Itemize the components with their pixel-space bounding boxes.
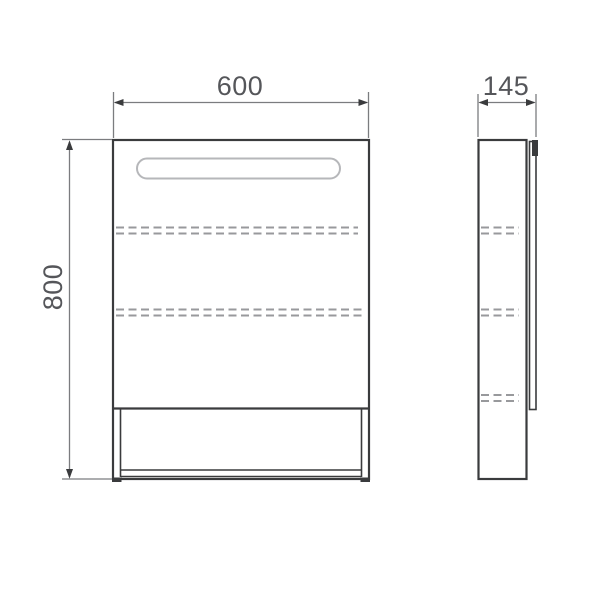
arrowhead-up-icon [66, 140, 73, 150]
side-door-top-edge [532, 140, 538, 156]
height-dimension-label: 800 [38, 264, 68, 311]
side-view [479, 140, 539, 479]
technical-drawing-page: 600 800 145 [0, 0, 600, 600]
arrowhead-left-icon [114, 99, 124, 106]
front-width-dimension-label: 600 [217, 71, 264, 101]
front-view [112, 140, 370, 482]
right-foot [361, 478, 371, 483]
light-strip [137, 159, 340, 179]
side-door-panel [530, 142, 537, 410]
dimension-front-width: 600 [114, 71, 369, 138]
left-foot [112, 478, 122, 483]
depth-dimension-label: 145 [483, 71, 530, 101]
technical-drawing-canvas: 600 800 145 [0, 0, 600, 600]
dimension-depth: 145 [478, 71, 536, 137]
arrowhead-down-icon [66, 469, 73, 479]
dimension-height: 800 [38, 140, 112, 480]
arrowhead-right-icon [359, 99, 369, 106]
